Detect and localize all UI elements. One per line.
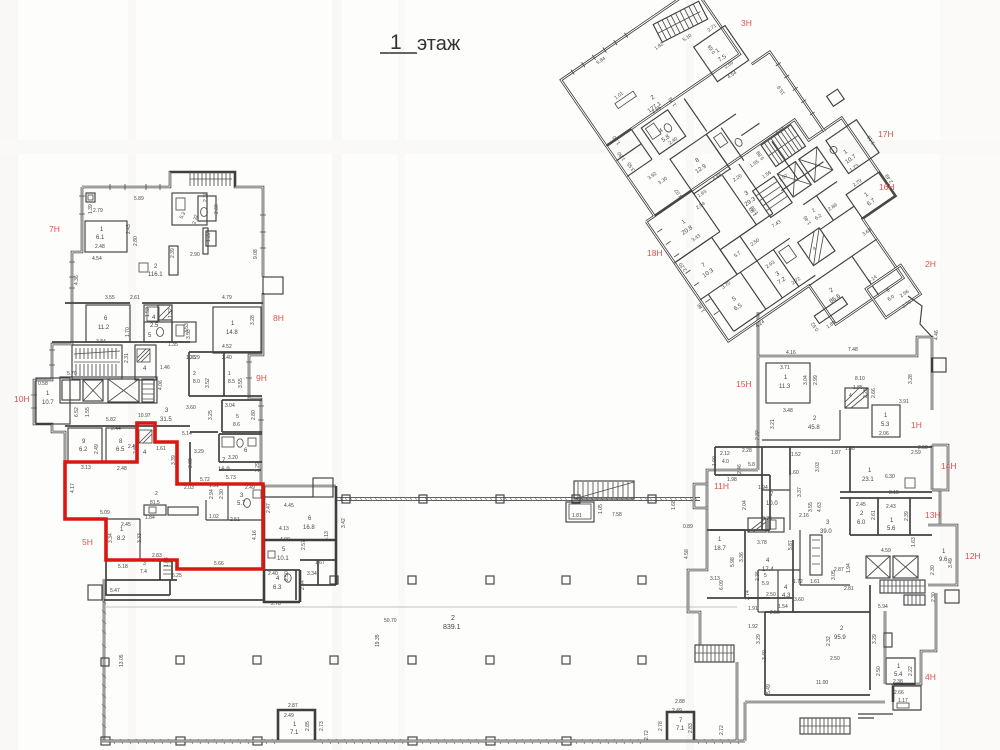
svg-text:2.50: 2.50 <box>766 592 776 598</box>
svg-text:3.55: 3.55 <box>238 378 244 388</box>
svg-text:15Н: 15Н <box>736 379 752 389</box>
svg-text:3.49: 3.49 <box>762 650 768 660</box>
svg-text:5.6: 5.6 <box>887 526 896 532</box>
svg-text:2.28: 2.28 <box>742 448 752 454</box>
svg-text:4.13: 4.13 <box>279 526 289 532</box>
svg-text:2.04: 2.04 <box>742 500 748 510</box>
svg-text:2.59: 2.59 <box>918 445 928 451</box>
svg-text:18Н: 18Н <box>647 248 663 258</box>
svg-text:5.73: 5.73 <box>226 475 236 481</box>
svg-text:2.83: 2.83 <box>688 723 694 733</box>
svg-text:2.46: 2.46 <box>737 464 743 474</box>
svg-text:5Н: 5Н <box>82 537 93 547</box>
svg-text:7.1: 7.1 <box>676 726 685 732</box>
svg-text:10.7: 10.7 <box>42 400 54 406</box>
svg-text:5.87: 5.87 <box>788 540 794 550</box>
svg-text:2.36: 2.36 <box>755 571 761 581</box>
svg-text:14.8: 14.8 <box>226 330 238 336</box>
svg-text:3.29: 3.29 <box>756 634 762 644</box>
svg-text:2.78: 2.78 <box>271 601 281 607</box>
svg-text:3.25: 3.25 <box>208 410 214 420</box>
svg-text:2.57: 2.57 <box>301 540 307 550</box>
svg-text:16.8: 16.8 <box>303 525 315 531</box>
svg-text:13Н: 13Н <box>925 510 941 520</box>
svg-text:5.47: 5.47 <box>110 588 120 594</box>
svg-text:1Н: 1Н <box>911 420 922 430</box>
svg-text:2.72: 2.72 <box>719 725 725 735</box>
svg-text:3.60: 3.60 <box>186 405 196 411</box>
svg-text:2.81: 2.81 <box>844 586 854 592</box>
svg-text:2.28: 2.28 <box>863 388 869 398</box>
svg-text:2.49: 2.49 <box>94 444 100 454</box>
svg-text:1.91: 1.91 <box>748 606 758 612</box>
svg-text:1.22: 1.22 <box>206 232 212 242</box>
svg-text:31.5: 31.5 <box>160 417 172 423</box>
svg-text:8.2: 8.2 <box>117 536 126 542</box>
svg-text:5.14: 5.14 <box>182 431 192 437</box>
svg-text:2.72: 2.72 <box>644 730 650 740</box>
svg-text:2.83: 2.83 <box>152 553 162 559</box>
svg-text:1.02: 1.02 <box>209 514 219 520</box>
svg-text:7.1: 7.1 <box>290 730 299 736</box>
svg-text:5.13: 5.13 <box>324 531 330 541</box>
svg-text:4Н: 4Н <box>925 672 936 682</box>
svg-text:1: 1 <box>390 31 402 54</box>
svg-text:2.43: 2.43 <box>886 504 896 510</box>
svg-text:2.48: 2.48 <box>117 466 127 472</box>
svg-text:1.52: 1.52 <box>791 452 801 458</box>
svg-text:6.25: 6.25 <box>172 573 182 579</box>
svg-text:этаж: этаж <box>417 33 461 55</box>
svg-text:2.66: 2.66 <box>894 690 904 696</box>
svg-text:2.61: 2.61 <box>871 510 877 520</box>
svg-text:2.06: 2.06 <box>879 431 889 437</box>
svg-text:2.29: 2.29 <box>190 355 200 361</box>
svg-text:3.55: 3.55 <box>808 502 814 512</box>
svg-text:2.44: 2.44 <box>111 426 121 432</box>
svg-text:2.30: 2.30 <box>219 489 225 499</box>
svg-text:5.49: 5.49 <box>766 684 772 694</box>
svg-text:3.71: 3.71 <box>780 365 790 371</box>
svg-text:16Н: 16Н <box>879 182 895 192</box>
svg-text:3.49: 3.49 <box>948 558 954 568</box>
svg-text:45.8: 45.8 <box>808 425 820 431</box>
svg-text:3.33: 3.33 <box>137 533 143 543</box>
svg-text:1.61: 1.61 <box>810 579 820 585</box>
svg-text:1: 1 <box>228 371 231 377</box>
svg-text:2.78: 2.78 <box>658 721 664 731</box>
svg-text:39.0: 39.0 <box>820 529 832 535</box>
svg-text:1.35: 1.35 <box>168 342 178 348</box>
svg-text:4.36: 4.36 <box>74 275 80 285</box>
svg-text:2: 2 <box>451 615 455 622</box>
svg-text:13.05: 13.05 <box>119 654 125 667</box>
svg-text:2.39: 2.39 <box>170 248 176 258</box>
svg-text:1.70: 1.70 <box>125 327 131 337</box>
svg-text:1.63: 1.63 <box>911 537 917 547</box>
svg-text:7.58: 7.58 <box>612 512 622 518</box>
svg-text:3.28: 3.28 <box>250 315 256 325</box>
svg-text:3.78: 3.78 <box>757 540 767 546</box>
svg-text:3.60: 3.60 <box>794 597 804 603</box>
svg-text:2.50: 2.50 <box>284 571 290 581</box>
svg-text:4.45: 4.45 <box>284 503 294 509</box>
svg-text:2.80: 2.80 <box>251 410 257 420</box>
svg-text:3.29: 3.29 <box>194 449 204 455</box>
svg-text:2.31: 2.31 <box>124 353 130 363</box>
svg-text:5.82: 5.82 <box>106 417 116 423</box>
svg-text:2.48: 2.48 <box>95 244 105 250</box>
svg-text:2.61: 2.61 <box>130 295 140 301</box>
svg-text:2.30: 2.30 <box>931 592 937 602</box>
svg-text:3.29: 3.29 <box>872 634 878 644</box>
svg-text:2.87: 2.87 <box>834 567 844 573</box>
svg-text:5: 5 <box>764 573 767 579</box>
svg-text:2.49: 2.49 <box>672 708 682 714</box>
svg-text:3.48: 3.48 <box>783 408 793 414</box>
svg-text:50.70: 50.70 <box>384 618 397 624</box>
svg-text:4.52: 4.52 <box>222 344 232 350</box>
svg-text:5.09: 5.09 <box>100 510 110 516</box>
svg-text:3.34: 3.34 <box>307 571 317 577</box>
svg-text:10Н: 10Н <box>14 394 30 404</box>
svg-text:6.09: 6.09 <box>719 580 725 590</box>
svg-text:2.88: 2.88 <box>675 699 685 705</box>
svg-text:6.3: 6.3 <box>273 585 282 591</box>
svg-text:3.04: 3.04 <box>803 375 809 385</box>
svg-text:2.94: 2.94 <box>209 489 215 499</box>
svg-text:1.94: 1.94 <box>846 563 852 573</box>
svg-text:14Н: 14Н <box>941 461 957 471</box>
svg-text:2.47: 2.47 <box>266 503 272 513</box>
svg-text:2.73: 2.73 <box>319 721 325 731</box>
svg-text:10.1: 10.1 <box>277 556 289 562</box>
svg-text:2.45: 2.45 <box>856 502 866 508</box>
svg-text:3.34: 3.34 <box>108 533 114 543</box>
svg-text:1.46: 1.46 <box>160 365 170 371</box>
svg-text:5.18: 5.18 <box>118 564 128 570</box>
svg-text:3.21: 3.21 <box>770 419 776 429</box>
svg-text:2.85: 2.85 <box>305 721 311 731</box>
svg-text:1.55: 1.55 <box>85 407 91 417</box>
svg-text:2.64: 2.64 <box>300 580 306 590</box>
svg-text:1.90: 1.90 <box>712 456 718 466</box>
svg-text:2.22: 2.22 <box>908 666 914 676</box>
svg-text:17Н: 17Н <box>878 129 894 139</box>
svg-text:1.52: 1.52 <box>145 307 151 317</box>
svg-text:5: 5 <box>236 414 239 420</box>
svg-text:3.55: 3.55 <box>105 295 115 301</box>
svg-text:5.7: 5.7 <box>237 501 246 507</box>
svg-text:3.03: 3.03 <box>815 462 821 472</box>
svg-text:3.84: 3.84 <box>96 339 106 345</box>
svg-text:1.87: 1.87 <box>831 450 841 456</box>
svg-text:5.89: 5.89 <box>134 196 144 202</box>
svg-text:18.7: 18.7 <box>714 546 726 552</box>
svg-text:3.36: 3.36 <box>739 552 745 562</box>
svg-text:2.90: 2.90 <box>190 252 200 258</box>
svg-text:1.39: 1.39 <box>88 204 94 214</box>
svg-text:8.6: 8.6 <box>233 422 240 428</box>
svg-text:0.89: 0.89 <box>683 524 693 530</box>
svg-text:3.15: 3.15 <box>889 490 899 496</box>
svg-text:2.29: 2.29 <box>255 462 261 472</box>
svg-text:11.3: 11.3 <box>779 384 791 390</box>
svg-text:5.66: 5.66 <box>214 561 224 567</box>
svg-text:8.10: 8.10 <box>855 376 865 382</box>
svg-text:2.49: 2.49 <box>284 713 294 719</box>
svg-text:4.16: 4.16 <box>252 530 258 540</box>
svg-text:4.46: 4.46 <box>934 330 940 340</box>
svg-text:2.03: 2.03 <box>184 485 194 491</box>
svg-text:2.45: 2.45 <box>121 522 131 528</box>
svg-text:95.9: 95.9 <box>834 635 846 641</box>
svg-text:6.2: 6.2 <box>79 447 88 453</box>
svg-text:9Н: 9Н <box>256 373 267 383</box>
svg-text:5.9: 5.9 <box>762 581 769 587</box>
svg-text:10.0: 10.0 <box>766 501 778 507</box>
svg-text:6.1: 6.1 <box>96 235 105 241</box>
svg-text:5.72: 5.72 <box>200 477 210 483</box>
svg-text:1.17: 1.17 <box>898 698 908 704</box>
svg-text:2.32: 2.32 <box>755 430 761 440</box>
svg-text:5.3: 5.3 <box>881 422 890 428</box>
svg-text:3.37: 3.37 <box>797 487 803 497</box>
svg-text:2.60: 2.60 <box>214 204 220 214</box>
svg-text:2.51: 2.51 <box>230 517 240 523</box>
svg-text:4.3: 4.3 <box>782 593 791 599</box>
svg-text:2.32: 2.32 <box>826 636 832 646</box>
svg-text:2.38: 2.38 <box>893 679 903 685</box>
svg-text:3.13: 3.13 <box>81 465 91 471</box>
svg-text:9.6: 9.6 <box>939 557 948 563</box>
svg-text:11.00: 11.00 <box>816 680 828 686</box>
svg-text:2: 2 <box>193 371 196 377</box>
svg-text:6.5: 6.5 <box>116 447 125 453</box>
svg-text:2.30: 2.30 <box>203 192 209 202</box>
svg-text:3: 3 <box>143 561 146 567</box>
svg-text:5.98: 5.98 <box>730 557 736 567</box>
svg-text:3.20: 3.20 <box>228 455 238 461</box>
svg-text:4.17: 4.17 <box>70 483 76 493</box>
svg-text:2.80: 2.80 <box>133 236 139 246</box>
svg-text:11.2: 11.2 <box>98 325 110 331</box>
svg-text:4.16: 4.16 <box>786 350 796 356</box>
svg-text:2.79: 2.79 <box>93 208 103 214</box>
svg-text:5.70: 5.70 <box>67 371 77 377</box>
svg-text:2.49: 2.49 <box>245 485 255 491</box>
svg-text:5.8: 5.8 <box>748 462 755 468</box>
svg-text:4.59: 4.59 <box>881 548 891 554</box>
svg-text:1.81: 1.81 <box>572 513 582 519</box>
svg-text:6.30: 6.30 <box>885 474 895 480</box>
svg-text:3.42: 3.42 <box>341 518 347 528</box>
svg-text:2.40: 2.40 <box>268 571 278 577</box>
svg-text:1.72: 1.72 <box>793 579 803 585</box>
svg-text:2.12: 2.12 <box>720 451 730 457</box>
svg-text:19.35: 19.35 <box>375 634 381 647</box>
svg-text:1.61: 1.61 <box>156 446 166 452</box>
svg-text:2.66: 2.66 <box>871 388 877 398</box>
svg-text:1.68: 1.68 <box>671 500 677 510</box>
svg-text:12Н: 12Н <box>965 551 981 561</box>
svg-text:116.1: 116.1 <box>148 272 163 278</box>
svg-text:4.79: 4.79 <box>222 295 232 301</box>
svg-text:10.97: 10.97 <box>138 413 151 419</box>
svg-text:1.84: 1.84 <box>145 515 155 521</box>
svg-text:5.94: 5.94 <box>878 604 888 610</box>
svg-text:1.05: 1.05 <box>598 504 604 514</box>
svg-text:2.50: 2.50 <box>830 656 840 662</box>
svg-text:6.52: 6.52 <box>74 407 80 417</box>
svg-text:9.08: 9.08 <box>253 249 259 259</box>
svg-text:2.50: 2.50 <box>770 610 780 616</box>
svg-text:1.32: 1.32 <box>168 308 174 318</box>
svg-text:4.58: 4.58 <box>684 549 690 559</box>
svg-text:1.94: 1.94 <box>758 485 768 491</box>
svg-text:8Н: 8Н <box>273 313 284 323</box>
svg-text:81.5: 81.5 <box>150 500 160 506</box>
svg-text:7.4: 7.4 <box>140 569 147 575</box>
svg-text:3.04: 3.04 <box>225 403 235 409</box>
svg-text:2.39: 2.39 <box>904 511 910 521</box>
svg-text:3Н: 3Н <box>741 18 752 28</box>
svg-text:2.30: 2.30 <box>930 565 936 575</box>
svg-text:4.54: 4.54 <box>92 256 102 262</box>
svg-text:3.76: 3.76 <box>762 516 772 522</box>
svg-text:2.50: 2.50 <box>876 666 882 676</box>
svg-text:8.0: 8.0 <box>193 379 200 385</box>
svg-text:3.91: 3.91 <box>899 399 909 405</box>
svg-text:1.67: 1.67 <box>315 560 325 566</box>
svg-text:2.43: 2.43 <box>126 224 132 234</box>
svg-text:8.5: 8.5 <box>228 379 235 385</box>
svg-text:2.74: 2.74 <box>745 590 751 600</box>
svg-text:3.53: 3.53 <box>186 329 192 339</box>
svg-text:2: 2 <box>155 491 158 497</box>
svg-text:4.06: 4.06 <box>158 380 164 390</box>
svg-text:0.58: 0.58 <box>38 381 48 387</box>
svg-text:6.0: 6.0 <box>857 520 866 526</box>
svg-text:4: 4 <box>849 393 852 399</box>
svg-text:1.85: 1.85 <box>853 385 863 391</box>
svg-text:2Н: 2Н <box>925 259 936 269</box>
svg-text:3.52: 3.52 <box>205 378 211 388</box>
svg-text:3.09: 3.09 <box>188 458 194 468</box>
svg-text:3.28: 3.28 <box>908 374 914 384</box>
svg-text:2.16: 2.16 <box>799 513 809 519</box>
svg-text:2.99: 2.99 <box>813 375 819 385</box>
svg-text:4.0: 4.0 <box>722 459 729 465</box>
svg-text:7.48: 7.48 <box>848 347 858 353</box>
svg-text:1.92: 1.92 <box>748 624 758 630</box>
svg-text:5.4: 5.4 <box>894 672 903 678</box>
svg-text:23.1: 23.1 <box>862 477 874 483</box>
svg-text:16.9: 16.9 <box>218 467 230 473</box>
svg-text:839.1: 839.1 <box>443 624 461 631</box>
svg-text:2.87: 2.87 <box>288 703 298 709</box>
svg-text:11Н: 11Н <box>714 481 729 491</box>
svg-text:4.00: 4.00 <box>280 537 290 543</box>
svg-text:7Н: 7Н <box>49 224 60 234</box>
svg-text:4.63: 4.63 <box>817 502 823 512</box>
